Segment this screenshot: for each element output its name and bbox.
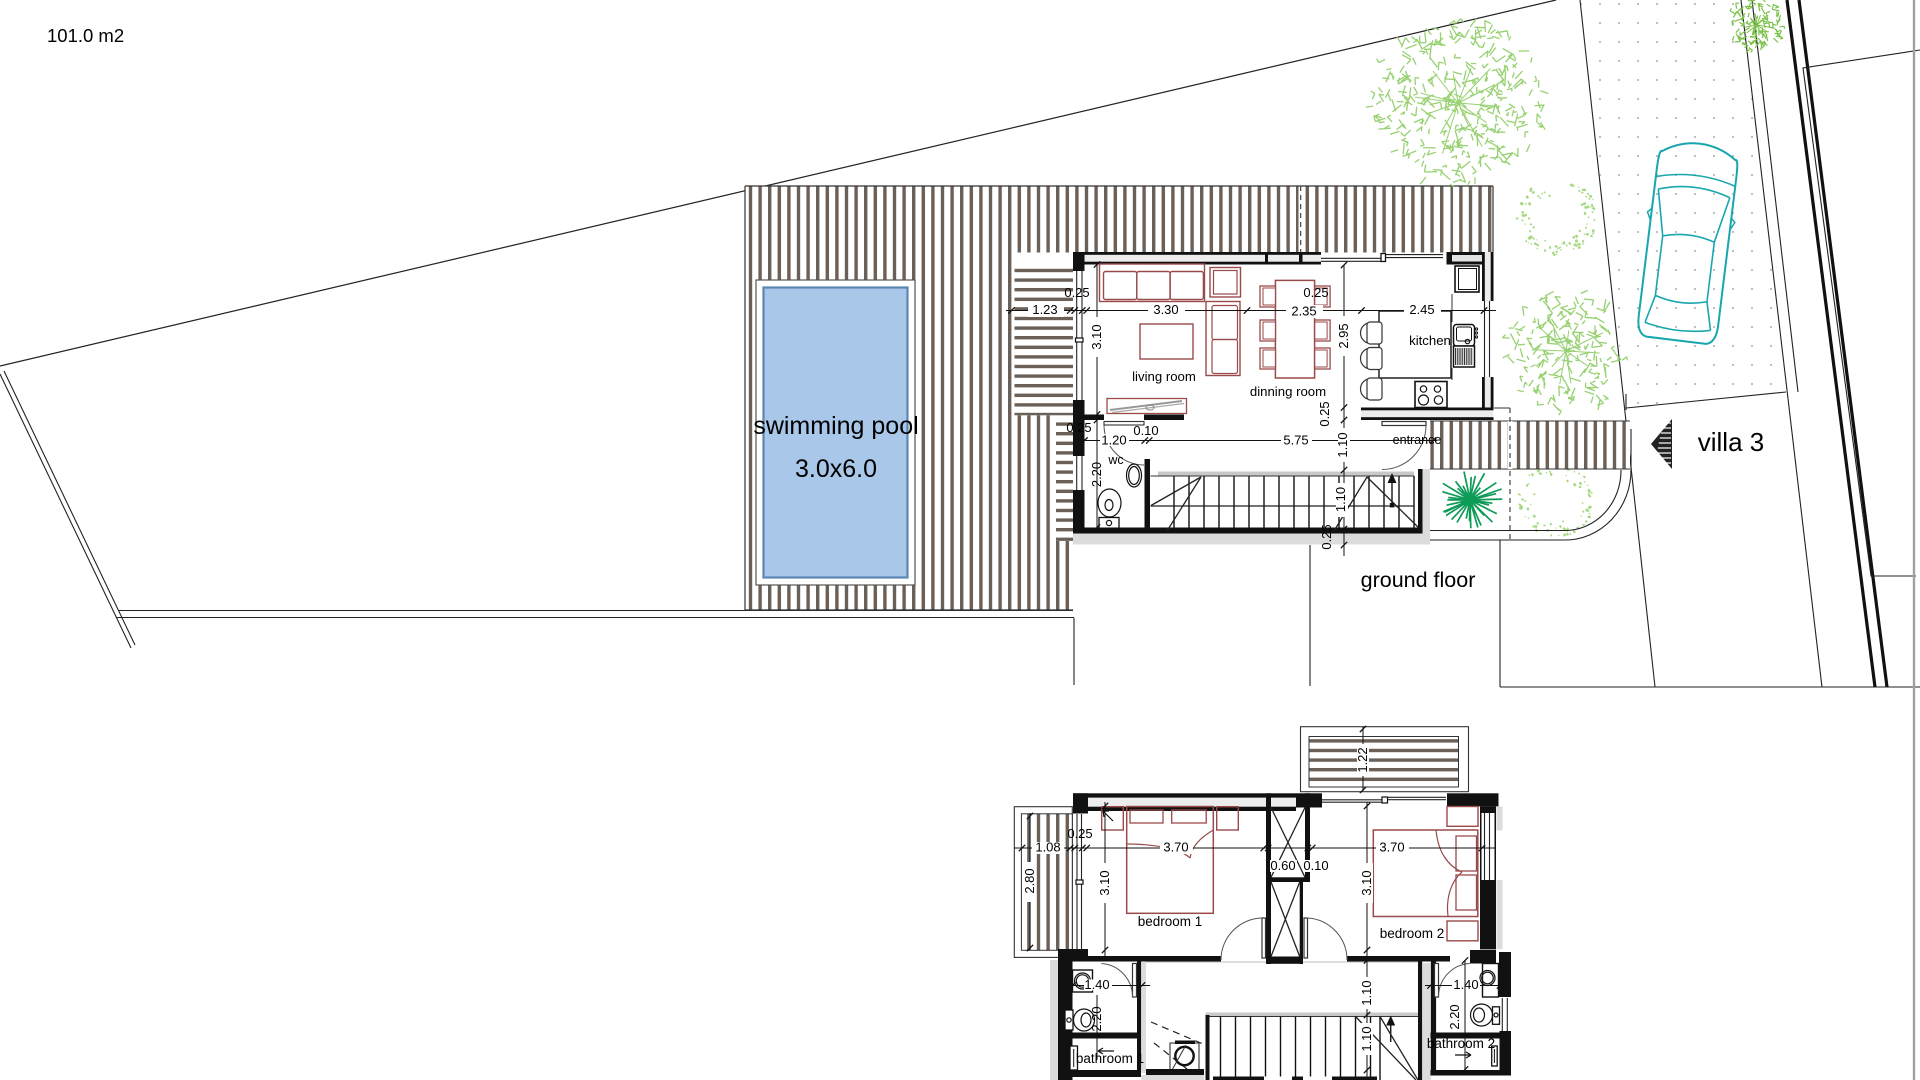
svg-text:0.25: 0.25 <box>1064 285 1089 300</box>
svg-text:1.20: 1.20 <box>1101 433 1126 448</box>
svg-text:kitchen: kitchen <box>1409 333 1451 348</box>
svg-text:villa 3: villa 3 <box>1698 427 1764 457</box>
svg-text:1.08: 1.08 <box>1035 840 1060 855</box>
svg-text:3.0x6.0: 3.0x6.0 <box>795 455 877 483</box>
svg-text:1.23: 1.23 <box>1032 302 1057 317</box>
svg-text:1.10: 1.10 <box>1359 1026 1374 1051</box>
svg-text:0.25: 0.25 <box>1303 285 1328 300</box>
svg-text:3.10: 3.10 <box>1359 870 1374 895</box>
svg-text:101.0 m2: 101.0 m2 <box>47 25 124 46</box>
svg-text:1.10: 1.10 <box>1359 980 1374 1005</box>
svg-text:wc: wc <box>1107 453 1123 467</box>
svg-text:2.20: 2.20 <box>1447 1004 1462 1029</box>
svg-text:3.30: 3.30 <box>1153 302 1178 317</box>
svg-text:swimming pool: swimming pool <box>753 412 918 440</box>
svg-text:3.70: 3.70 <box>1163 840 1188 855</box>
svg-text:living room: living room <box>1132 369 1196 384</box>
svg-text:0.25: 0.25 <box>1066 420 1091 435</box>
svg-text:1.40: 1.40 <box>1084 977 1109 992</box>
svg-text:2.45: 2.45 <box>1409 302 1434 317</box>
svg-text:bedroom 1: bedroom 1 <box>1138 914 1203 929</box>
svg-text:0.25: 0.25 <box>1067 826 1092 841</box>
svg-text:bathroom 1: bathroom 1 <box>1076 1051 1144 1066</box>
svg-text:2.80: 2.80 <box>1022 868 1037 893</box>
svg-text:0.25: 0.25 <box>1319 524 1334 549</box>
svg-text:3.10: 3.10 <box>1089 324 1104 349</box>
svg-text:1.22: 1.22 <box>1355 747 1370 772</box>
svg-text:0.10: 0.10 <box>1303 858 1328 873</box>
svg-text:1.10: 1.10 <box>1335 432 1350 457</box>
svg-text:3.70: 3.70 <box>1379 840 1404 855</box>
svg-text:0.25: 0.25 <box>1317 401 1332 426</box>
svg-text:2.20: 2.20 <box>1089 1006 1104 1031</box>
svg-text:bedroom 2: bedroom 2 <box>1380 926 1445 941</box>
svg-text:0.60: 0.60 <box>1270 858 1295 873</box>
svg-text:2.35: 2.35 <box>1291 304 1316 319</box>
svg-text:bathroom 2: bathroom 2 <box>1427 1036 1495 1051</box>
svg-text:1.10: 1.10 <box>1333 487 1348 512</box>
svg-text:1.40: 1.40 <box>1453 977 1478 992</box>
svg-text:0.10: 0.10 <box>1133 423 1158 438</box>
svg-text:ground floor: ground floor <box>1361 568 1476 592</box>
svg-text:5.75: 5.75 <box>1283 433 1308 448</box>
svg-text:3.10: 3.10 <box>1097 870 1112 895</box>
svg-text:2.95: 2.95 <box>1336 323 1351 348</box>
svg-text:dinning room: dinning room <box>1250 384 1326 399</box>
